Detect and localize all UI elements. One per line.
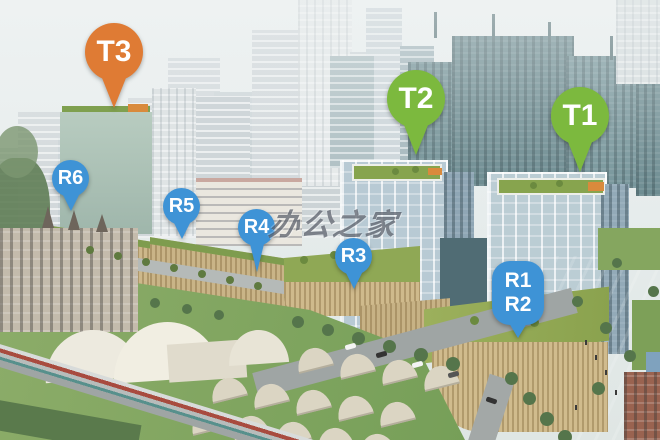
tree [226, 276, 234, 284]
marker-r6-label: R6 [58, 167, 84, 190]
marker-r3-label: R3 [341, 245, 367, 268]
tree [392, 168, 399, 175]
heritage-building [0, 228, 138, 332]
pedestrian [575, 405, 577, 410]
marker-t1-tail [568, 142, 592, 172]
marker-t2[interactable]: T2 [387, 70, 445, 155]
tree [322, 324, 334, 336]
tree [572, 296, 583, 307]
marker-r2-label: R2 [505, 293, 532, 317]
t1-roof-orange-detail [588, 182, 604, 191]
tree [592, 382, 605, 395]
marker-r5[interactable]: R5 [163, 188, 200, 239]
tree [412, 166, 419, 173]
tree [114, 252, 122, 260]
tree [446, 357, 460, 371]
tree [198, 270, 206, 278]
tree [170, 264, 178, 272]
marker-r4-tail [250, 244, 264, 272]
tree [505, 372, 518, 385]
marker-r5-label: R5 [169, 195, 195, 218]
marker-t1-label: T1 [562, 99, 597, 133]
marker-t3-head: T3 [85, 23, 143, 81]
aerial-rendering: 办公之家 T3 T2 T1 R6 R5 R4 R3 R1 R2 [0, 0, 660, 440]
tree [648, 286, 659, 297]
marker-r6-tail [63, 195, 79, 211]
tree [540, 412, 554, 426]
marker-r1-r2-head: R1 R2 [492, 261, 544, 325]
marker-t3-tail [102, 78, 126, 108]
tree [292, 316, 304, 328]
tree [182, 304, 192, 314]
turret-cone [96, 214, 108, 232]
tree [300, 256, 308, 264]
pedestrian [585, 340, 587, 345]
tree [470, 316, 479, 325]
tree [624, 350, 636, 362]
marker-r3[interactable]: R3 [335, 238, 372, 289]
marker-t2-label: T2 [398, 82, 433, 116]
marker-r1-label: R1 [505, 269, 532, 293]
marker-r6[interactable]: R6 [52, 160, 89, 211]
tree [612, 258, 622, 268]
turret-cone [68, 210, 80, 230]
tree [600, 322, 612, 334]
marker-t3-label: T3 [96, 35, 131, 69]
brick-building [624, 372, 660, 440]
pedestrian [615, 390, 617, 395]
marker-r5-tail [174, 223, 190, 239]
white-slab-building [196, 96, 250, 188]
pedestrian [595, 355, 597, 360]
tree [150, 298, 160, 308]
tree [214, 310, 224, 320]
tree [530, 182, 537, 189]
marker-t2-head: T2 [387, 70, 445, 128]
marker-r5-head: R5 [163, 188, 200, 225]
tree [254, 282, 262, 290]
tree [523, 392, 536, 405]
marker-r1-r2[interactable]: R1 R2 [492, 261, 544, 338]
marker-r3-tail [346, 273, 362, 289]
r1r2-podium-wall [432, 342, 608, 432]
marker-r4-label: R4 [244, 216, 270, 239]
marker-r1-r2-tail [509, 323, 527, 338]
marker-t3[interactable]: T3 [85, 23, 143, 108]
tree [558, 430, 572, 440]
t2-roof-orange-detail [428, 168, 442, 175]
tree [142, 258, 150, 266]
marker-t1[interactable]: T1 [551, 87, 609, 172]
marker-t2-tail [404, 125, 428, 155]
tree [556, 180, 563, 187]
watermark: 办公之家 [266, 200, 402, 244]
tree [86, 246, 94, 254]
pedestrian [605, 370, 607, 375]
marker-r6-head: R6 [52, 160, 89, 197]
marker-t1-head: T1 [551, 87, 609, 145]
lawn-right [598, 228, 660, 270]
